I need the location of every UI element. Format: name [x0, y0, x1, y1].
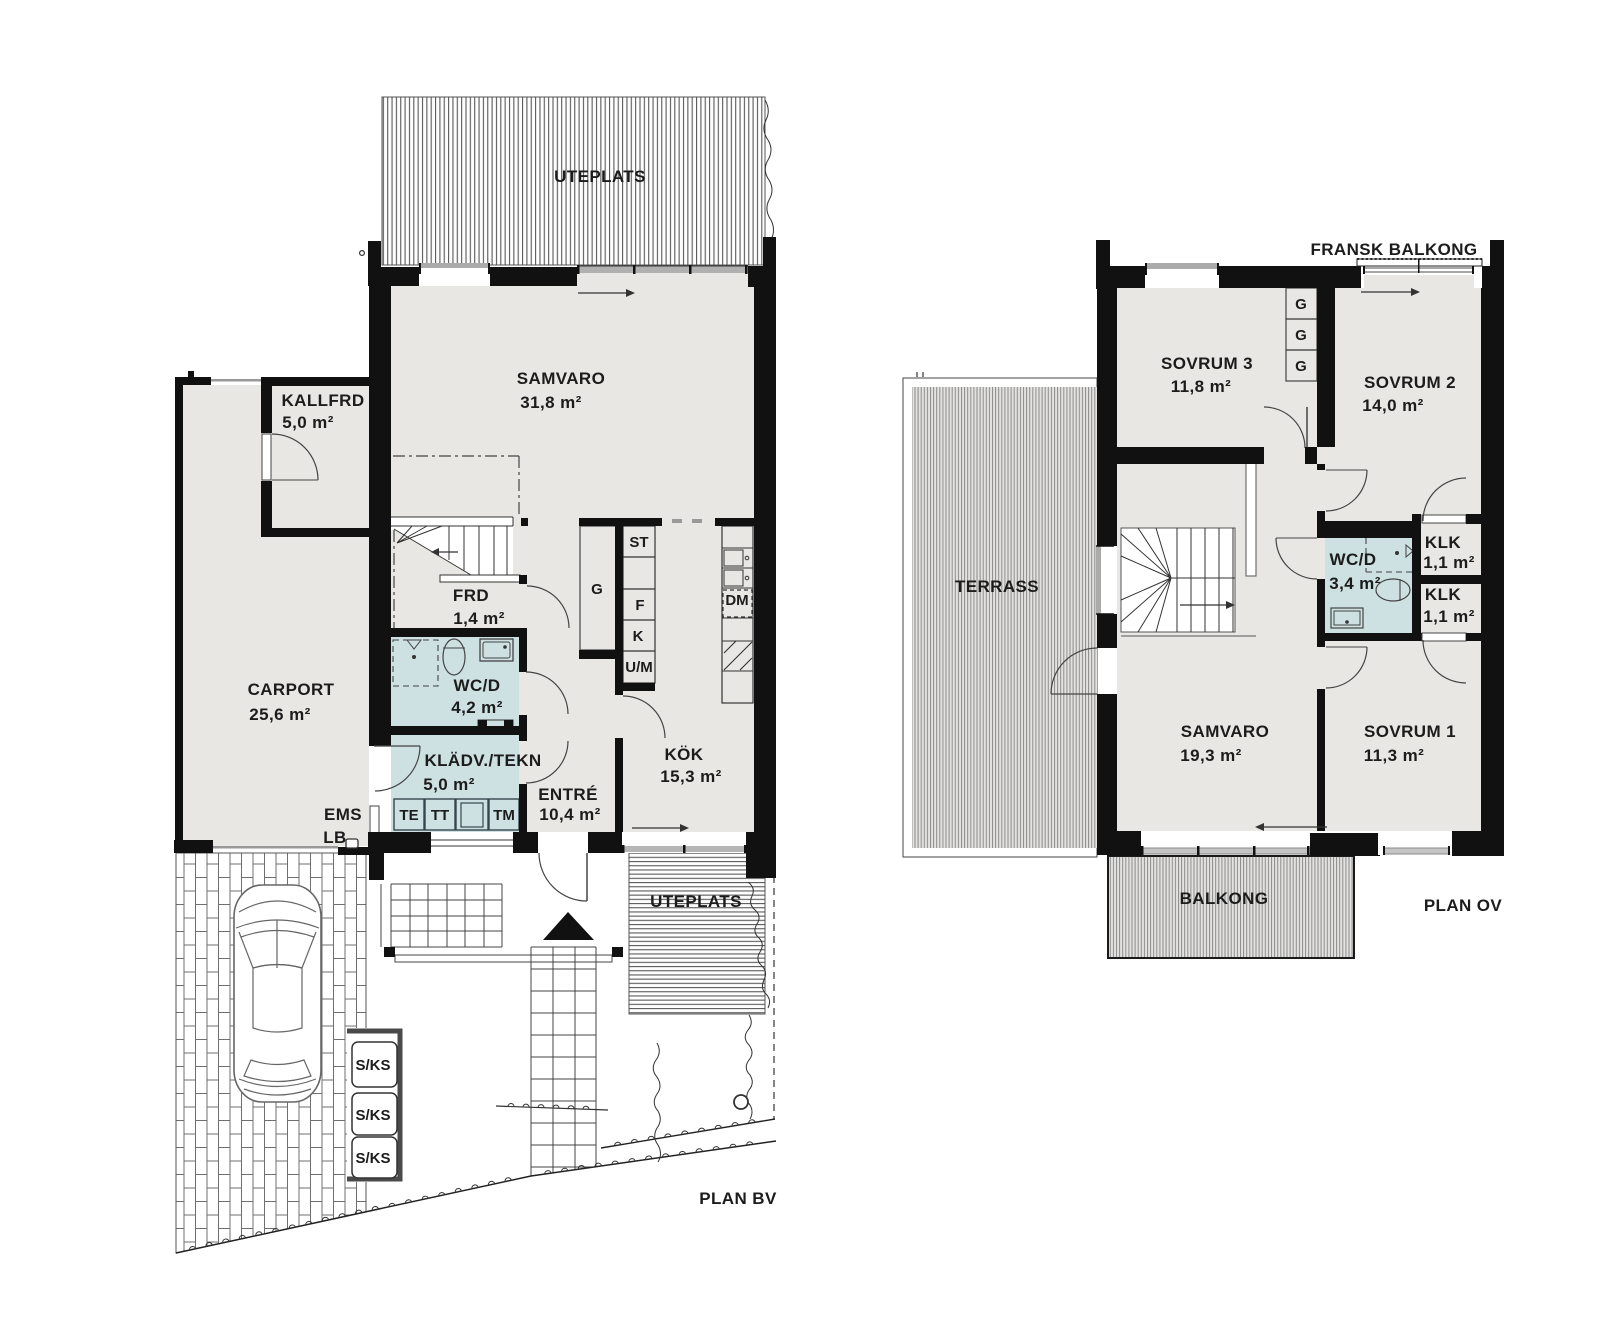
svg-text:G: G: [1295, 327, 1307, 344]
svg-text:5,0 m²: 5,0 m²: [423, 775, 475, 794]
svg-text:TM: TM: [493, 807, 515, 824]
svg-text:31,8 m²: 31,8 m²: [520, 393, 581, 412]
svg-text:SAMVARO: SAMVARO: [517, 369, 605, 388]
svg-text:ST: ST: [629, 534, 648, 551]
svg-text:TT: TT: [431, 807, 449, 824]
svg-text:10,4 m²: 10,4 m²: [539, 805, 600, 824]
svg-text:15,3 m²: 15,3 m²: [660, 767, 721, 786]
svg-text:CARPORT: CARPORT: [248, 680, 335, 699]
svg-text:KLK: KLK: [1425, 585, 1461, 604]
svg-text:11,8 m²: 11,8 m²: [1171, 377, 1231, 396]
svg-text:WC/D: WC/D: [1330, 550, 1377, 569]
svg-text:11,3 m²: 11,3 m²: [1364, 746, 1424, 765]
svg-text:19,3 m²: 19,3 m²: [1180, 746, 1241, 765]
svg-text:KLK: KLK: [1425, 533, 1461, 552]
svg-text:KÖK: KÖK: [665, 745, 704, 764]
svg-text:F: F: [635, 597, 644, 614]
svg-text:TE: TE: [399, 807, 418, 824]
svg-text:1,1 m²: 1,1 m²: [1423, 553, 1475, 572]
svg-text:1,4 m²: 1,4 m²: [453, 609, 505, 628]
svg-text:S/KS: S/KS: [355, 1057, 390, 1074]
svg-text:SAMVARO: SAMVARO: [1181, 722, 1269, 741]
svg-text:BALKONG: BALKONG: [1180, 889, 1269, 908]
svg-text:KLÄDV./TEKN: KLÄDV./TEKN: [424, 751, 541, 770]
svg-text:4,2 m²: 4,2 m²: [451, 698, 503, 717]
svg-text:PLAN BV: PLAN BV: [699, 1189, 777, 1208]
svg-text:SOVRUM 1: SOVRUM 1: [1364, 722, 1456, 741]
svg-text:SOVRUM 2: SOVRUM 2: [1364, 373, 1456, 392]
svg-text:UTEPLATS: UTEPLATS: [554, 167, 646, 186]
svg-text:5,0 m²: 5,0 m²: [282, 413, 334, 432]
svg-text:U/M: U/M: [625, 659, 653, 676]
svg-text:G: G: [591, 581, 603, 598]
svg-text:PLAN OV: PLAN OV: [1424, 896, 1503, 915]
svg-text:1,1 m²: 1,1 m²: [1423, 607, 1475, 626]
svg-text:3,4 m²: 3,4 m²: [1329, 574, 1381, 593]
svg-text:S/KS: S/KS: [355, 1150, 390, 1167]
svg-text:ENTRÉ: ENTRÉ: [538, 785, 598, 804]
svg-text:WC/D: WC/D: [454, 676, 501, 695]
svg-text:TERRASS: TERRASS: [955, 577, 1039, 596]
svg-text:UTEPLATS: UTEPLATS: [650, 892, 742, 911]
svg-text:LB: LB: [323, 828, 346, 847]
svg-text:FRD: FRD: [453, 586, 489, 605]
svg-text:FRANSK BALKONG: FRANSK BALKONG: [1310, 240, 1477, 259]
svg-text:25,6 m²: 25,6 m²: [249, 705, 310, 724]
svg-text:EMS: EMS: [324, 805, 362, 824]
svg-text:KALLFRD: KALLFRD: [281, 391, 364, 410]
svg-text:14,0 m²: 14,0 m²: [1362, 396, 1423, 415]
svg-text:SOVRUM 3: SOVRUM 3: [1161, 354, 1253, 373]
svg-text:K: K: [633, 628, 644, 645]
svg-text:DM: DM: [725, 592, 748, 609]
svg-text:G: G: [1295, 296, 1307, 313]
svg-text:G: G: [1295, 358, 1307, 375]
svg-text:S/KS: S/KS: [355, 1107, 390, 1124]
